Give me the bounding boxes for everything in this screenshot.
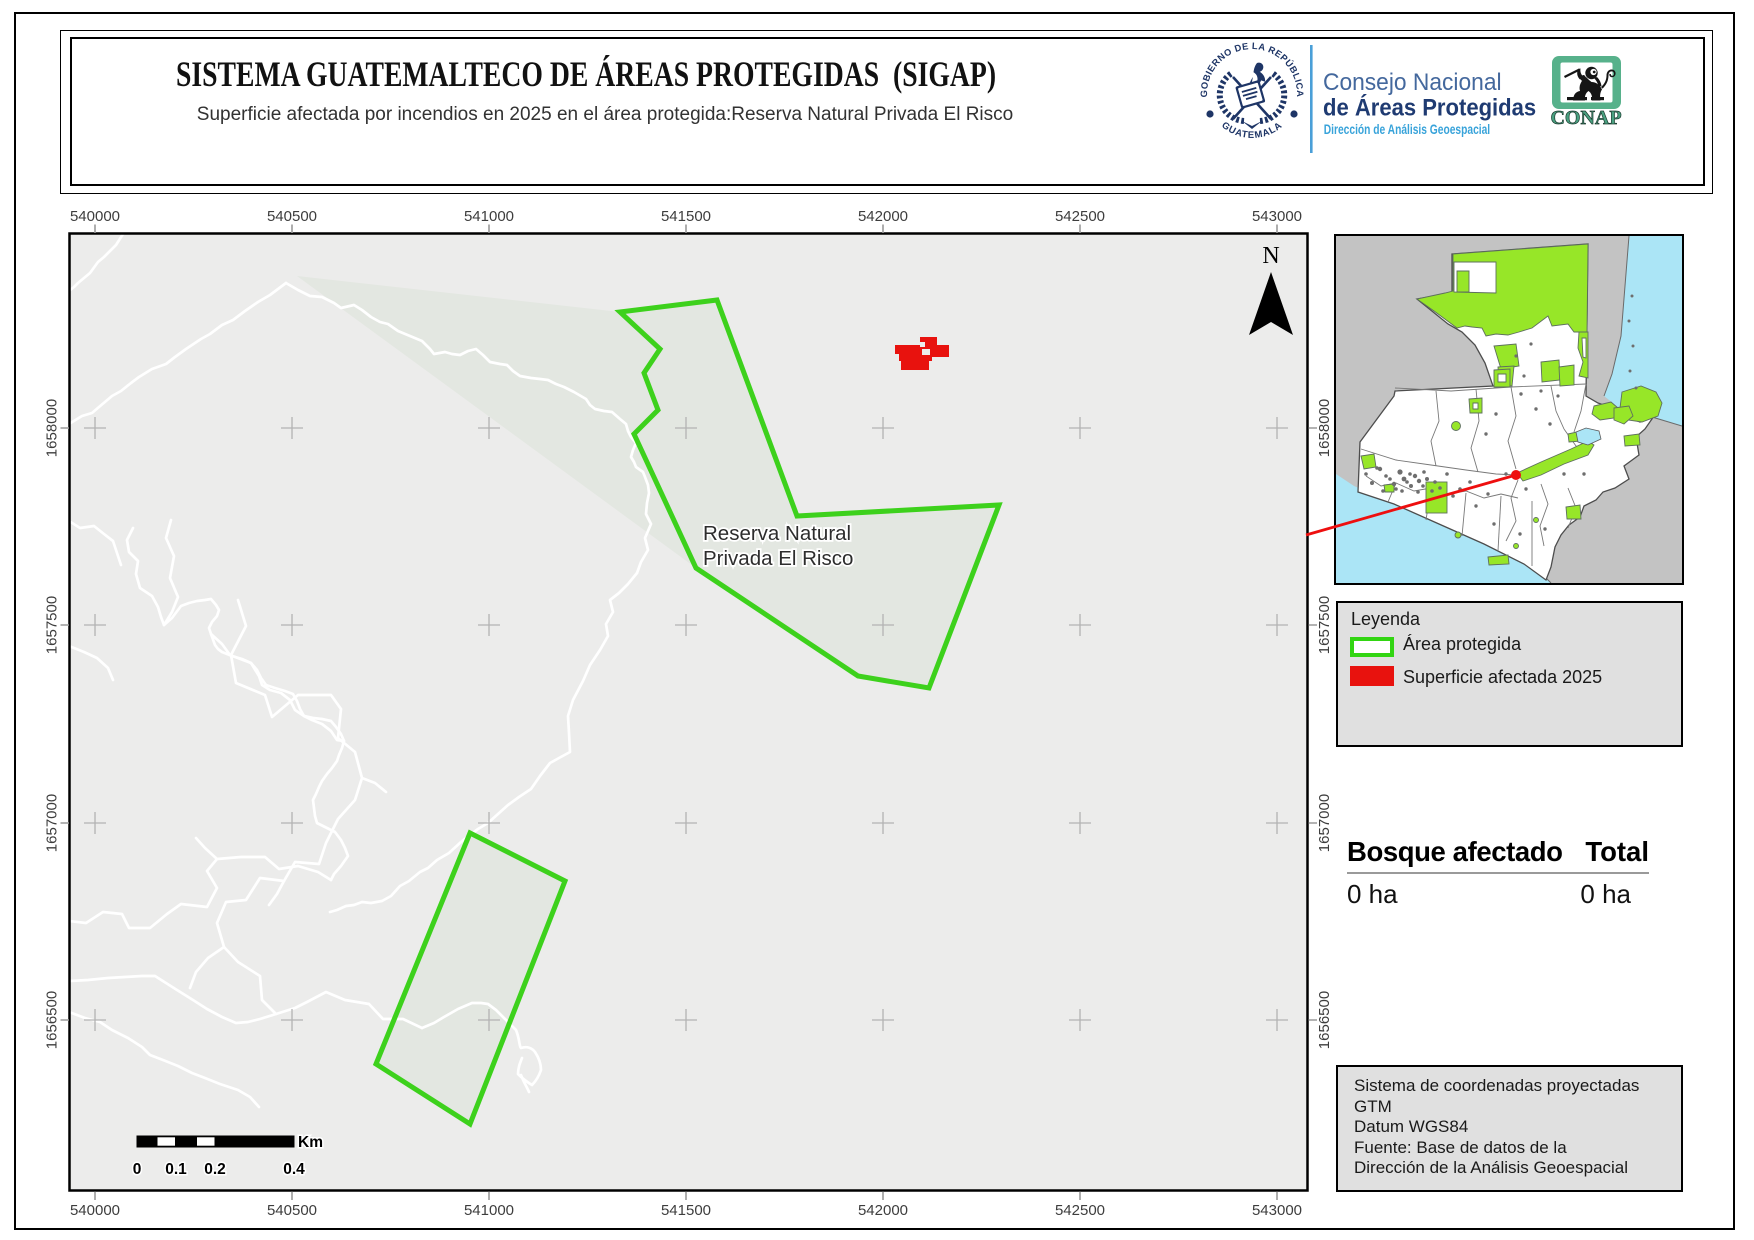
svg-text:0.4: 0.4 [283, 1161, 305, 1178]
svg-text:Privada El Risco: Privada El Risco [703, 547, 853, 570]
svg-text:540500: 540500 [267, 208, 317, 225]
svg-text:Reserva Natural: Reserva Natural [703, 522, 851, 545]
svg-text:1656500: 1656500 [44, 991, 61, 1049]
svg-text:N: N [1262, 243, 1279, 269]
svg-text:541500: 541500 [661, 1202, 711, 1219]
svg-text:1657000: 1657000 [44, 794, 61, 852]
svg-text:543000: 543000 [1252, 208, 1302, 225]
svg-text:542500: 542500 [1055, 1202, 1105, 1219]
svg-text:1657000: 1657000 [1316, 794, 1333, 852]
svg-text:542000: 542000 [858, 208, 908, 225]
svg-text:0.2: 0.2 [204, 1161, 226, 1178]
svg-text:1656500: 1656500 [1316, 991, 1333, 1049]
svg-text:1657500: 1657500 [1316, 596, 1333, 654]
svg-text:542500: 542500 [1055, 208, 1105, 225]
svg-text:540000: 540000 [70, 208, 120, 225]
svg-text:543000: 543000 [1252, 1202, 1302, 1219]
svg-text:541500: 541500 [661, 208, 711, 225]
svg-text:1658000: 1658000 [44, 399, 61, 457]
svg-text:541000: 541000 [464, 1202, 514, 1219]
svg-text:540000: 540000 [70, 1202, 120, 1219]
svg-text:542000: 542000 [858, 1202, 908, 1219]
svg-text:540500: 540500 [267, 1202, 317, 1219]
svg-text:0: 0 [133, 1161, 142, 1178]
svg-text:541000: 541000 [464, 208, 514, 225]
svg-text:0.1: 0.1 [165, 1161, 187, 1178]
svg-text:Km: Km [298, 1134, 323, 1151]
svg-text:1657500: 1657500 [44, 596, 61, 654]
